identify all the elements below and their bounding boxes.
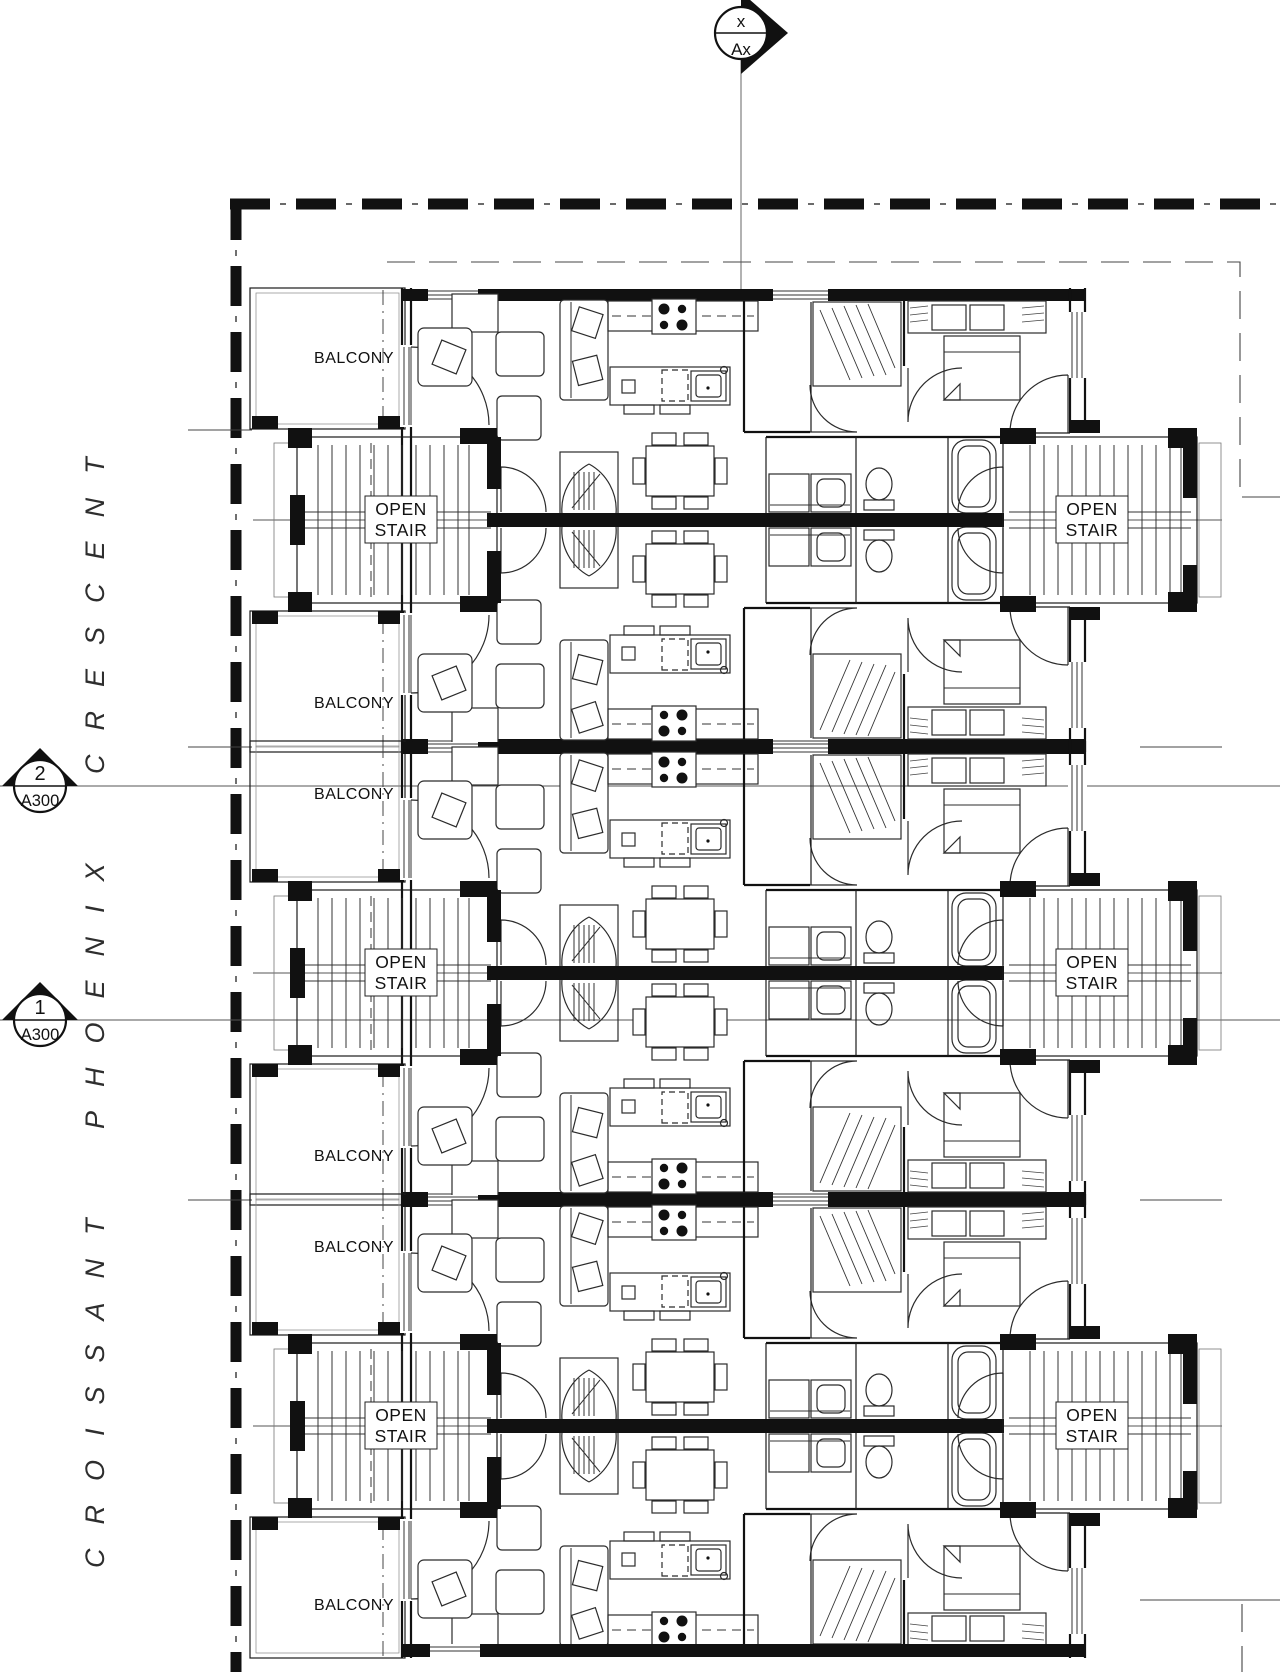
grid-axis-top-label: x — [737, 12, 746, 31]
section-number: 1 — [34, 997, 45, 1019]
balcony-label: BALCONY — [314, 350, 394, 367]
section-marker-2: 2 A300 — [2, 748, 78, 812]
floor-plan-sheet: OPEN STAIR OPEN — [0, 0, 1280, 1672]
section-sheet: A300 — [21, 1026, 60, 1044]
section-number: 2 — [34, 763, 45, 785]
unit-b3 — [250, 1426, 1100, 1658]
unit-a1 — [250, 288, 1100, 520]
unit-a3 — [250, 1194, 1100, 1426]
balcony-label: BALCONY — [314, 1597, 394, 1614]
street-name-label: CROISSANT PHOENIX CRESCENT — [80, 433, 110, 1568]
section-marker-1: 1 A300 — [2, 982, 78, 1046]
section-sheet: A300 — [21, 792, 60, 810]
floor-plan-drawing: OPEN STAIR OPEN — [0, 0, 1280, 1672]
grid-axis-marker: x Ax — [715, 0, 788, 289]
balcony-label: BALCONY — [314, 1148, 394, 1165]
unit-b1 — [250, 520, 1100, 752]
unit-b2 — [250, 973, 1100, 1205]
stair-core-row-1 — [253, 428, 1222, 612]
south-exterior-wall — [402, 1644, 1085, 1657]
unit-a2 — [250, 741, 1100, 973]
stair-core-row-2 — [253, 881, 1222, 1065]
balcony-label: BALCONY — [314, 695, 394, 712]
stair-core-row-3 — [253, 1334, 1222, 1518]
balcony-label: BALCONY — [314, 1239, 394, 1256]
grid-axis-bottom-label: Ax — [731, 40, 751, 59]
balcony-label: BALCONY — [314, 786, 394, 803]
